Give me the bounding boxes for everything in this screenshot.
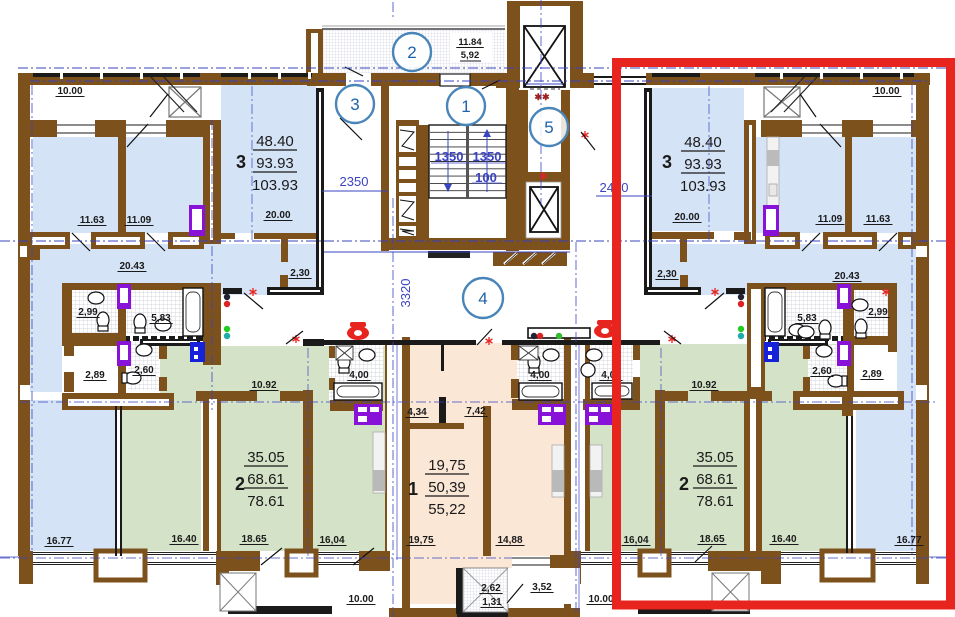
svg-text:16.40: 16.40 [771,534,796,545]
svg-text:3: 3 [350,95,359,114]
svg-text:2,99: 2,99 [78,307,98,318]
svg-text:4,00: 4,00 [530,370,550,381]
svg-text:10.92: 10.92 [691,380,716,391]
svg-text:3: 3 [662,152,672,172]
svg-text:16,04: 16,04 [319,535,344,546]
svg-text:2: 2 [235,474,245,494]
svg-text:10.00: 10.00 [57,86,82,97]
svg-text:50,39: 50,39 [428,479,466,496]
svg-text:48.40: 48.40 [684,134,722,151]
svg-text:18.65: 18.65 [699,534,724,545]
svg-text:14,88: 14,88 [497,535,522,546]
svg-text:11.63: 11.63 [80,215,105,226]
svg-text:18.65: 18.65 [241,534,266,545]
svg-text:35.05: 35.05 [247,449,285,466]
svg-text:5,83: 5,83 [151,313,171,324]
svg-text:55,22: 55,22 [428,501,466,518]
svg-text:4,34: 4,34 [407,407,427,418]
svg-text:11.63: 11.63 [866,214,891,225]
svg-text:20.43: 20.43 [834,271,859,282]
svg-text:68.61: 68.61 [247,471,285,488]
svg-text:93.93: 93.93 [256,155,294,172]
svg-text:5,83: 5,83 [797,313,817,324]
svg-text:2,99: 2,99 [868,307,888,318]
svg-text:5: 5 [544,118,553,137]
svg-text:10.00: 10.00 [588,594,613,605]
svg-text:2,89: 2,89 [85,370,105,381]
svg-text:93.93: 93.93 [684,156,722,173]
svg-text:2,89: 2,89 [862,369,882,380]
svg-text:1350: 1350 [473,149,502,164]
svg-text:3: 3 [236,152,246,172]
svg-text:2,62: 2,62 [481,583,501,594]
svg-text:4,00: 4,00 [349,370,369,381]
svg-text:2: 2 [407,43,416,62]
svg-text:16.77: 16.77 [896,535,921,546]
svg-text:11.09: 11.09 [127,215,152,226]
svg-text:103.93: 103.93 [680,178,726,195]
svg-text:2350: 2350 [340,174,369,189]
svg-text:3,52: 3,52 [532,582,552,593]
svg-text:3320: 3320 [398,279,413,308]
svg-text:35.05: 35.05 [696,449,734,466]
svg-text:2,30: 2,30 [657,269,677,280]
svg-text:11.84: 11.84 [458,37,482,48]
svg-text:1: 1 [461,97,470,116]
svg-text:48.40: 48.40 [256,133,294,150]
svg-text:2: 2 [679,474,689,494]
svg-text:16,04: 16,04 [623,535,648,546]
svg-text:103.93: 103.93 [252,177,298,194]
svg-text:78.61: 78.61 [247,493,285,510]
svg-text:11.09: 11.09 [818,214,843,225]
svg-text:16.40: 16.40 [171,534,196,545]
svg-text:16.77: 16.77 [46,536,71,547]
svg-text:10.92: 10.92 [251,380,276,391]
svg-text:19,75: 19,75 [408,535,433,546]
svg-text:4: 4 [478,289,487,308]
svg-text:20.00: 20.00 [265,210,290,221]
svg-text:2,60: 2,60 [812,366,832,377]
svg-text:1350: 1350 [435,149,464,164]
svg-text:19,75: 19,75 [428,457,466,474]
svg-text:10.00: 10.00 [348,594,373,605]
svg-text:7,42: 7,42 [466,406,486,417]
svg-text:20.00: 20.00 [674,212,699,223]
svg-text:5,92: 5,92 [461,50,480,61]
svg-text:✱✱: ✱✱ [534,92,550,102]
svg-text:20.43: 20.43 [119,261,144,272]
svg-text:1,31: 1,31 [482,597,502,608]
svg-text:78.61: 78.61 [696,493,734,510]
svg-text:68.61: 68.61 [696,471,734,488]
svg-text:10.00: 10.00 [874,86,899,97]
svg-text:2,60: 2,60 [134,365,154,376]
svg-text:2,30: 2,30 [290,268,310,279]
svg-text:1: 1 [408,479,418,499]
